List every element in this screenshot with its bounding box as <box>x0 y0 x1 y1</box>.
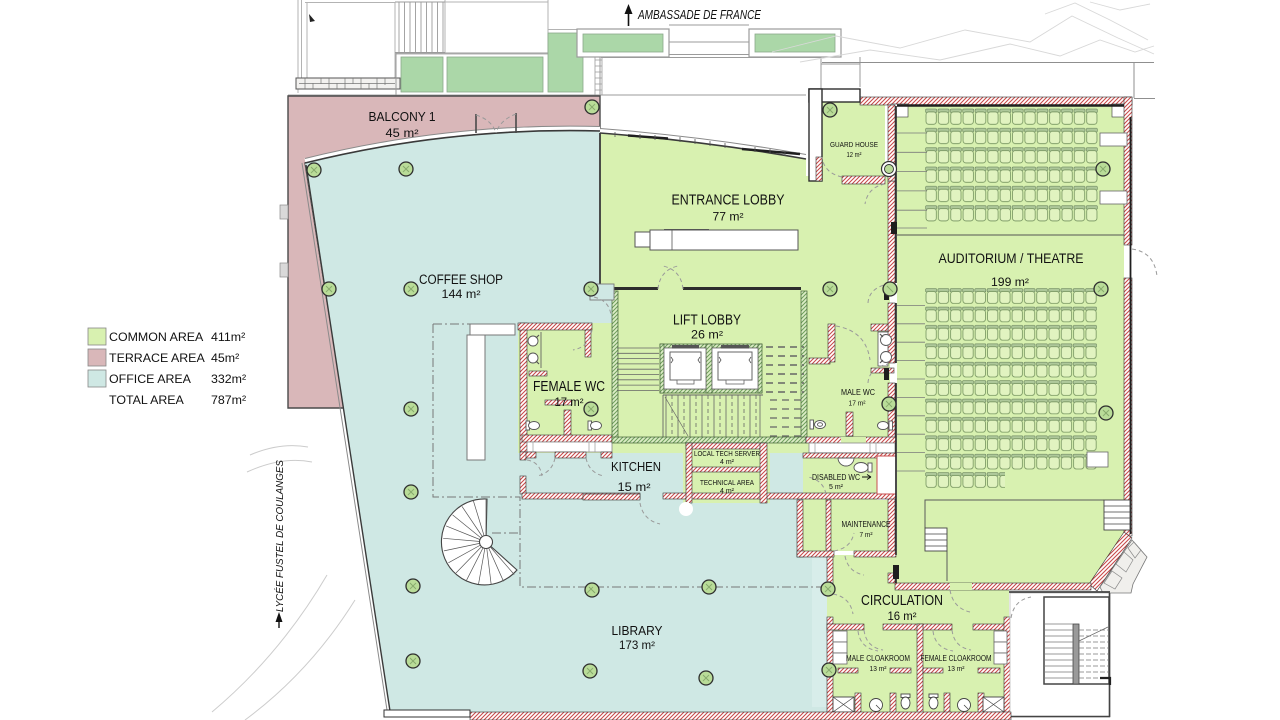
svg-text:DISABLED WC: DISABLED WC <box>812 473 860 482</box>
svg-text:45m²: 45m² <box>211 351 239 365</box>
svg-text:144 m²: 144 m² <box>442 289 481 301</box>
svg-text:OFFICE AREA: OFFICE AREA <box>109 372 192 386</box>
svg-text:AMBASSADE DE FRANCE: AMBASSADE DE FRANCE <box>637 8 761 22</box>
svg-text:26 m²: 26 m² <box>691 330 723 342</box>
svg-text:787m²: 787m² <box>211 393 246 407</box>
svg-text:12 m²: 12 m² <box>847 152 863 159</box>
svg-text:MAINTENANCE: MAINTENANCE <box>842 520 891 529</box>
svg-text:17 m²: 17 m² <box>849 399 866 408</box>
svg-text:COMMON AREA: COMMON AREA <box>109 330 204 344</box>
svg-text:LYCÉE FUSTEL DE COULANGES: LYCÉE FUSTEL DE COULANGES <box>275 460 286 612</box>
svg-text:411m²: 411m² <box>211 330 245 344</box>
svg-text:4 m²: 4 m² <box>720 459 735 466</box>
svg-text:13 m²: 13 m² <box>870 664 887 673</box>
svg-text:COFFEE SHOP: COFFEE SHOP <box>419 272 503 287</box>
svg-text:FEMALE CLOAKROOM: FEMALE CLOAKROOM <box>921 654 992 663</box>
svg-text:FEMALE WC: FEMALE WC <box>533 379 605 395</box>
svg-text:45 m²: 45 m² <box>386 128 419 140</box>
svg-text:BALCONY 1: BALCONY 1 <box>369 109 436 124</box>
svg-text:5 m²: 5 m² <box>829 482 843 491</box>
svg-text:4 m²: 4 m² <box>720 488 735 495</box>
svg-text:ENTRANCE LOBBY: ENTRANCE LOBBY <box>672 193 785 209</box>
svg-text:TOTAL AREA: TOTAL AREA <box>109 393 185 407</box>
svg-text:TECHNICAL AREA: TECHNICAL AREA <box>700 478 754 487</box>
svg-text:13 m²: 13 m² <box>948 664 965 673</box>
svg-text:77 m²: 77 m² <box>713 212 744 224</box>
svg-text:15 m²: 15 m² <box>618 482 651 494</box>
svg-text:332m²: 332m² <box>211 372 246 386</box>
svg-text:CIRCULATION: CIRCULATION <box>861 593 943 609</box>
svg-text:LIBRARY: LIBRARY <box>612 623 663 638</box>
svg-text:AUDITORIUM / THEATRE: AUDITORIUM / THEATRE <box>939 250 1084 266</box>
svg-text:17 m²: 17 m² <box>555 397 584 409</box>
svg-text:199 m²: 199 m² <box>991 277 1029 289</box>
svg-text:MALE CLOAKROOM: MALE CLOAKROOM <box>846 654 910 663</box>
svg-text:GUARD HOUSE: GUARD HOUSE <box>830 140 878 149</box>
svg-text:LIFT LOBBY: LIFT LOBBY <box>673 313 741 329</box>
svg-text:TERRACE AREA: TERRACE AREA <box>109 351 205 365</box>
svg-text:173 m²: 173 m² <box>619 640 655 652</box>
svg-text:MALE WC: MALE WC <box>841 388 875 397</box>
svg-text:LOCAL TECH SERVER: LOCAL TECH SERVER <box>694 449 760 458</box>
svg-text:16 m²: 16 m² <box>888 611 917 623</box>
svg-text:KITCHEN: KITCHEN <box>611 459 661 474</box>
svg-text:7 m²: 7 m² <box>860 530 873 539</box>
